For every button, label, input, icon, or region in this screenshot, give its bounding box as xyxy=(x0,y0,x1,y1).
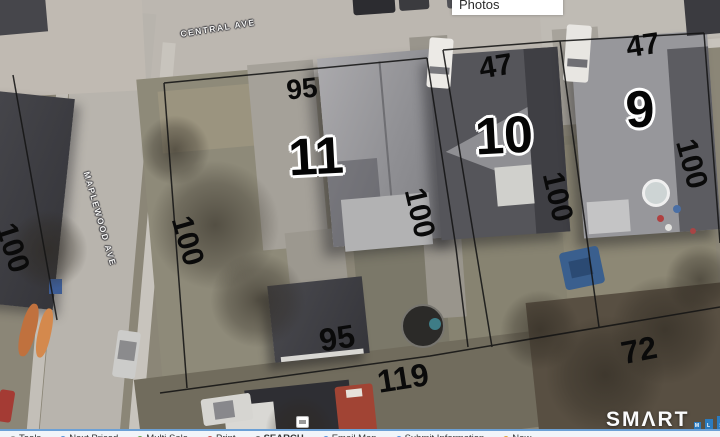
windshield xyxy=(430,66,450,74)
legend-item-tools[interactable]: Tools xyxy=(10,433,41,437)
legend-label: Email Map xyxy=(332,433,377,437)
yard-debris-red2 xyxy=(690,228,696,234)
legend-item-search[interactable]: SEARCH xyxy=(255,433,304,437)
dimension-47-p9: 47 xyxy=(624,29,661,63)
legend-label: Submit Information xyxy=(405,433,485,437)
photos-button[interactable]: Photos xyxy=(452,0,563,15)
legend-item-multi-sale[interactable]: Multi Sale xyxy=(137,433,188,437)
parcel-number-10: 10 xyxy=(474,109,534,164)
blue-tarp xyxy=(558,245,605,290)
sunroof xyxy=(345,388,362,398)
parcel-number-9: 9 xyxy=(625,84,656,137)
nw-corner-roof xyxy=(0,0,48,37)
yard-debris-red xyxy=(657,215,664,222)
windshield xyxy=(567,58,587,67)
mls-square-s: S xyxy=(717,416,720,430)
dimension-119: 119 xyxy=(375,358,431,398)
tree-canopy xyxy=(210,252,306,348)
porch-roof xyxy=(587,200,630,235)
legend-label: Print xyxy=(216,433,236,437)
legend-label: Multi Sale xyxy=(146,433,188,437)
yard-debris-white xyxy=(665,224,672,231)
map-viewport[interactable]: CENTRAL AVE MAPLEWOOD AVE 11 10 9 95 100… xyxy=(0,0,720,437)
legend-item-print[interactable]: Print xyxy=(207,433,236,437)
dimension-72: 72 xyxy=(618,331,659,369)
tree-canopy xyxy=(140,115,210,185)
pool-glint xyxy=(429,318,441,330)
legend-item-new[interactable]: New xyxy=(503,433,531,437)
dimension-95-bottom: 95 xyxy=(317,319,357,356)
legend-label: Next Priced xyxy=(69,433,118,437)
legend-item-submit-information[interactable]: Submit Information xyxy=(396,433,485,437)
ne-corner-roof xyxy=(683,0,720,36)
legend-item-next-priced[interactable]: Next Priced xyxy=(60,433,118,437)
legend-item-email-map[interactable]: Email Map xyxy=(323,433,377,437)
tarp-fold xyxy=(568,257,593,278)
car-windows xyxy=(117,340,137,361)
tree-canopy xyxy=(500,290,580,370)
parcel9-round-pool xyxy=(642,179,670,207)
round-pool xyxy=(401,304,445,348)
legend-label: SEARCH xyxy=(264,433,304,437)
parcel10-yard-object xyxy=(494,164,534,206)
white-van-parcel10 xyxy=(426,37,453,89)
dimension-95-top: 95 xyxy=(285,73,319,104)
car-windows xyxy=(213,400,235,420)
legend-label: Tools xyxy=(19,433,41,437)
smartmls-logo: SMΛRT M L S xyxy=(606,409,720,430)
parcel-number-11: 11 xyxy=(287,130,345,185)
yard-debris-blue xyxy=(673,205,681,213)
smart-logo-text: SMΛRT xyxy=(606,409,690,430)
map-control-icon[interactable] xyxy=(296,416,309,428)
map-control-glyph xyxy=(299,420,306,424)
red-object-sw xyxy=(0,389,15,423)
white-van-parcel9 xyxy=(563,24,592,83)
legend-label: New xyxy=(512,433,531,437)
bottom-legend-bar: Tools Next Priced Multi Sale Print SEARC… xyxy=(0,429,720,437)
dimension-47-p10: 47 xyxy=(477,50,515,85)
